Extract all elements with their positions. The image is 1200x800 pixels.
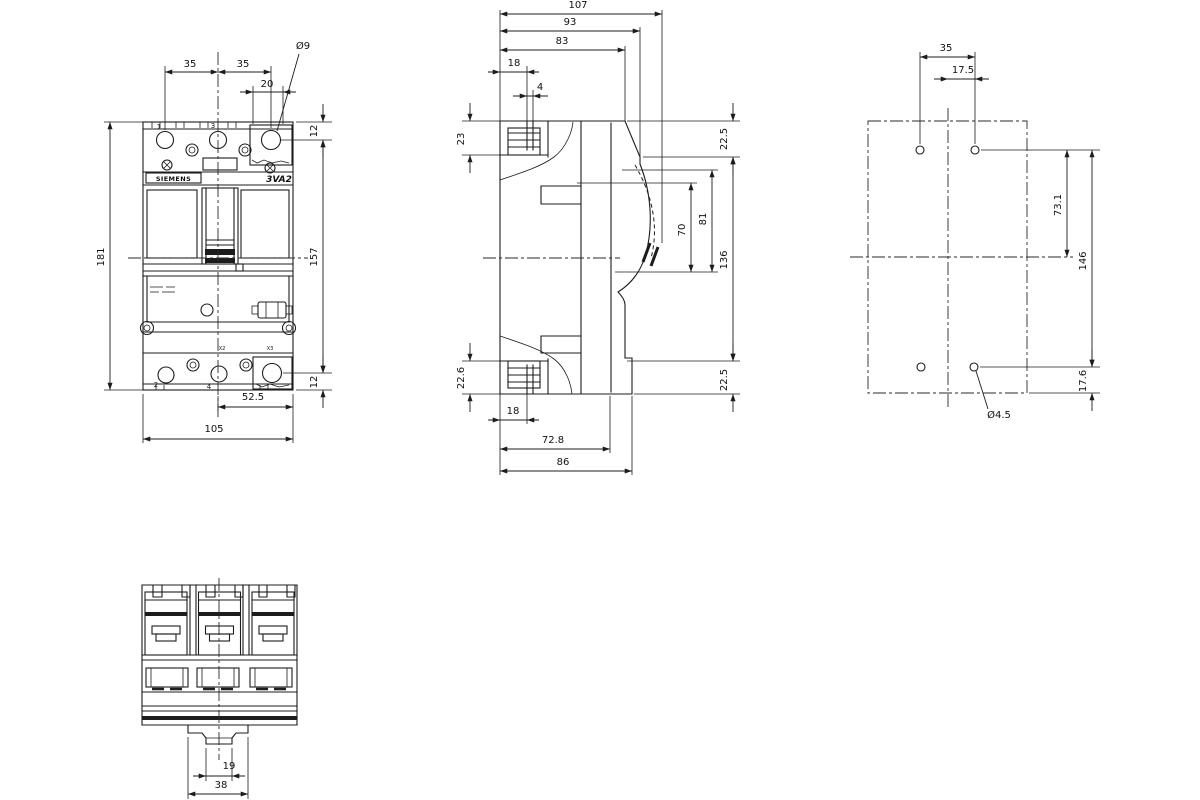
dim-base-depth: 72.8 [542, 435, 564, 446]
dim-clamp-top: 18 [508, 58, 521, 69]
mount-hole-bottom-left [917, 363, 925, 371]
side-dimensions: 107 93 83 18 4 23 22.6 [456, 0, 740, 475]
dim-pole-pitch-right: 35 [237, 59, 250, 70]
dim-top-offset: 12 [309, 125, 320, 138]
mount-hole-bottom-right [970, 363, 978, 371]
back-dimensions: 35 17.5 73.1 146 17.6 Ø4.5 [920, 43, 1100, 421]
aux-x2-label: X2 [219, 346, 226, 352]
reset-button[interactable] [201, 304, 213, 316]
terminal-4-hole [211, 366, 227, 382]
dim-handle-depth: 93 [564, 17, 577, 28]
dim-handle-sweep-inner: 70 [677, 224, 688, 237]
din-clip [188, 725, 248, 744]
mount-hole-top-right [971, 146, 979, 154]
dim-slot-top: 4 [537, 82, 543, 93]
dim-top-left: 23 [456, 133, 467, 146]
terminal-clamp-top [500, 121, 573, 180]
dim-upper-hole-span: 73.1 [1053, 194, 1064, 216]
dim-mid-height: 136 [719, 250, 730, 269]
drawing-canvas: SIEMENS 3VA2 [0, 0, 1200, 800]
toggle-handle[interactable] [202, 188, 238, 264]
dim-top-right: 22.5 [719, 128, 730, 150]
dim-hole-dia-back: Ø4.5 [987, 409, 1011, 421]
dim-clamp-bottom: 18 [507, 406, 520, 417]
test-button[interactable] [252, 302, 292, 318]
dim-bottom-right: 22.5 [719, 369, 730, 391]
dim-total-height: 181 [96, 247, 107, 266]
terminal-2-hole [158, 367, 174, 383]
bottom-dimensions: 19 38 [188, 737, 248, 799]
side-view: 107 93 83 18 4 23 22.6 [456, 0, 740, 475]
vent-slots-bottom [156, 385, 268, 390]
dim-hole-pitch: 35 [940, 43, 953, 54]
front-panel-left [147, 190, 197, 258]
dim-half-width: 52.5 [242, 392, 264, 403]
model-label: 3VA2 [266, 175, 292, 185]
dim-lug-window: 20 [261, 79, 274, 90]
dimensional-drawing: SIEMENS 3VA2 [0, 0, 1200, 800]
dim-mount-height: 157 [309, 247, 320, 266]
front-panel-right [241, 190, 289, 258]
din-rail-slot [142, 716, 297, 720]
front-dimensions: 35 35 20 Ø9 12 157 12 [96, 40, 332, 443]
toggle-handle-side[interactable] [643, 243, 658, 266]
dim-bottom-left: 22.6 [456, 367, 467, 389]
dim-front-depth: 83 [556, 36, 569, 47]
aux-x3-label: X3 [267, 346, 274, 352]
pole-chamber-2 [199, 592, 241, 655]
front-view: SIEMENS 3VA2 [96, 40, 332, 443]
rating-print [150, 287, 175, 292]
dim-pole-pitch-left: 35 [184, 59, 197, 70]
dim-bottom-offset-back: 17.6 [1078, 370, 1089, 392]
dim-clip-width: 19 [223, 761, 236, 772]
accessory-window [203, 158, 237, 170]
mount-hole-top-left [916, 146, 924, 154]
terminal-2-label: 2 [154, 381, 158, 389]
barrier-slots [153, 585, 295, 597]
dim-handle-sweep-outer: 81 [698, 213, 709, 226]
dim-total-depth: 107 [568, 0, 587, 11]
dim-mount-depth: 86 [557, 457, 570, 468]
dim-bottom-offset: 12 [309, 376, 320, 389]
dim-half-pitch: 17.5 [952, 65, 974, 76]
terminal-1-label: 1 [157, 123, 161, 131]
dim-foot-width: 38 [215, 780, 228, 791]
drilling-plan-view: 35 17.5 73.1 146 17.6 Ø4.5 [850, 43, 1100, 421]
terminal-1-hole [157, 132, 174, 149]
brand-label: SIEMENS [156, 175, 191, 183]
terminal-4-label: 4 [207, 383, 212, 391]
dim-hole-span: 146 [1078, 251, 1089, 270]
pole-chamber-1 [145, 592, 187, 655]
bottom-view: 19 38 [142, 578, 297, 799]
pole-chamber-3 [252, 592, 294, 655]
terminal-clamp-bottom [500, 336, 572, 394]
dim-total-width: 105 [204, 424, 223, 435]
terminal-3-label: 3 [211, 122, 215, 130]
dim-hole-dia: Ø9 [296, 40, 310, 52]
terminal-lug-top [250, 125, 292, 165]
